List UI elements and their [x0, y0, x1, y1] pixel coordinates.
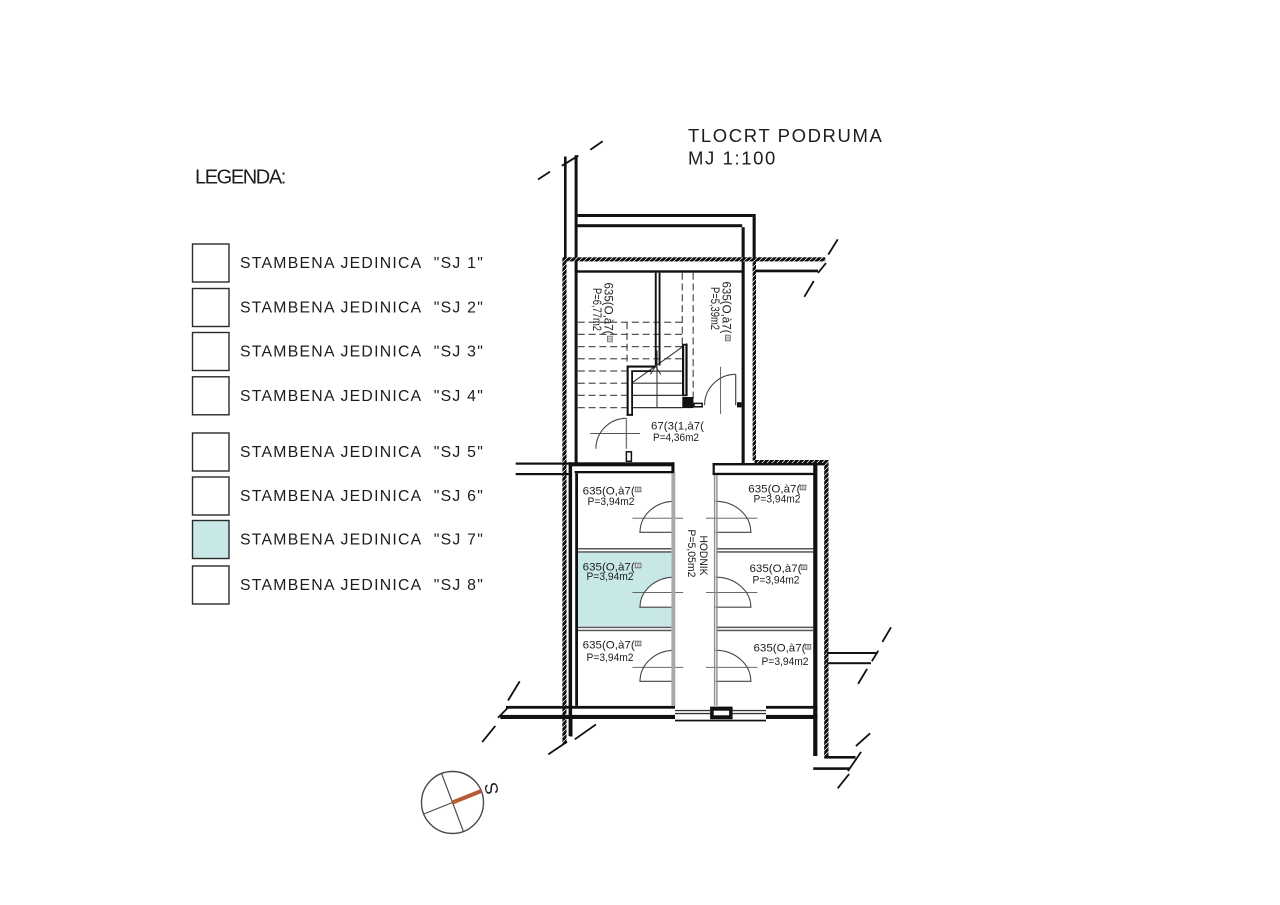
- svg-text:STAMBENA JEDINICA "SJ 2": STAMBENA JEDINICA "SJ 2": [240, 300, 484, 317]
- svg-text:635(O,à7(: 635(O,à7(: [750, 563, 802, 575]
- svg-text:P=3,94m2: P=3,94m2: [587, 571, 634, 583]
- svg-text:P=3,94m2: P=3,94m2: [588, 496, 635, 508]
- svg-text:67(3(1,à7(: 67(3(1,à7(: [651, 420, 704, 432]
- svg-text:P=3,94m2: P=3,94m2: [753, 575, 800, 587]
- svg-text:STAMBENA JEDINICA "SJ 8": STAMBENA JEDINICA "SJ 8": [240, 577, 484, 594]
- svg-text:STAMBENA JEDINICA "SJ 5": STAMBENA JEDINICA "SJ 5": [240, 444, 484, 461]
- svg-text:STAMBENA JEDINICA "SJ 4": STAMBENA JEDINICA "SJ 4": [240, 388, 484, 405]
- svg-text:635(O,à7(: 635(O,à7(: [583, 639, 635, 651]
- svg-text:P=3,94m2: P=3,94m2: [754, 494, 801, 506]
- svg-text:HODNIK: HODNIK: [697, 536, 709, 577]
- svg-text:TLOCRT PODRUMA: TLOCRT PODRUMA: [688, 125, 883, 146]
- svg-text:635(O,à7(: 635(O,à7(: [602, 283, 614, 335]
- svg-text:LEGENDA:: LEGENDA:: [195, 167, 285, 189]
- svg-text:P=3,94m2: P=3,94m2: [762, 656, 809, 668]
- svg-text:635(O,à7(: 635(O,à7(: [754, 643, 806, 655]
- svg-text:STAMBENA JEDINICA "SJ 7": STAMBENA JEDINICA "SJ 7": [240, 532, 484, 549]
- svg-text:635(O,à7(: 635(O,à7(: [720, 282, 732, 334]
- svg-text:STAMBENA JEDINICA "SJ 6": STAMBENA JEDINICA "SJ 6": [240, 488, 484, 505]
- svg-text:MJ 1:100: MJ 1:100: [688, 148, 777, 169]
- svg-text:STAMBENA JEDINICA "SJ 1": STAMBENA JEDINICA "SJ 1": [240, 255, 484, 272]
- svg-text:STAMBENA JEDINICA "SJ 3": STAMBENA JEDINICA "SJ 3": [240, 344, 484, 361]
- svg-text:P=5,39m2: P=5,39m2: [708, 287, 720, 330]
- svg-text:P=6,77m2: P=6,77m2: [590, 288, 602, 331]
- svg-text:P=5,05m2: P=5,05m2: [685, 529, 697, 577]
- svg-text:P=4,36m2: P=4,36m2: [653, 432, 699, 444]
- svg-text:P=3,94m2: P=3,94m2: [587, 652, 634, 664]
